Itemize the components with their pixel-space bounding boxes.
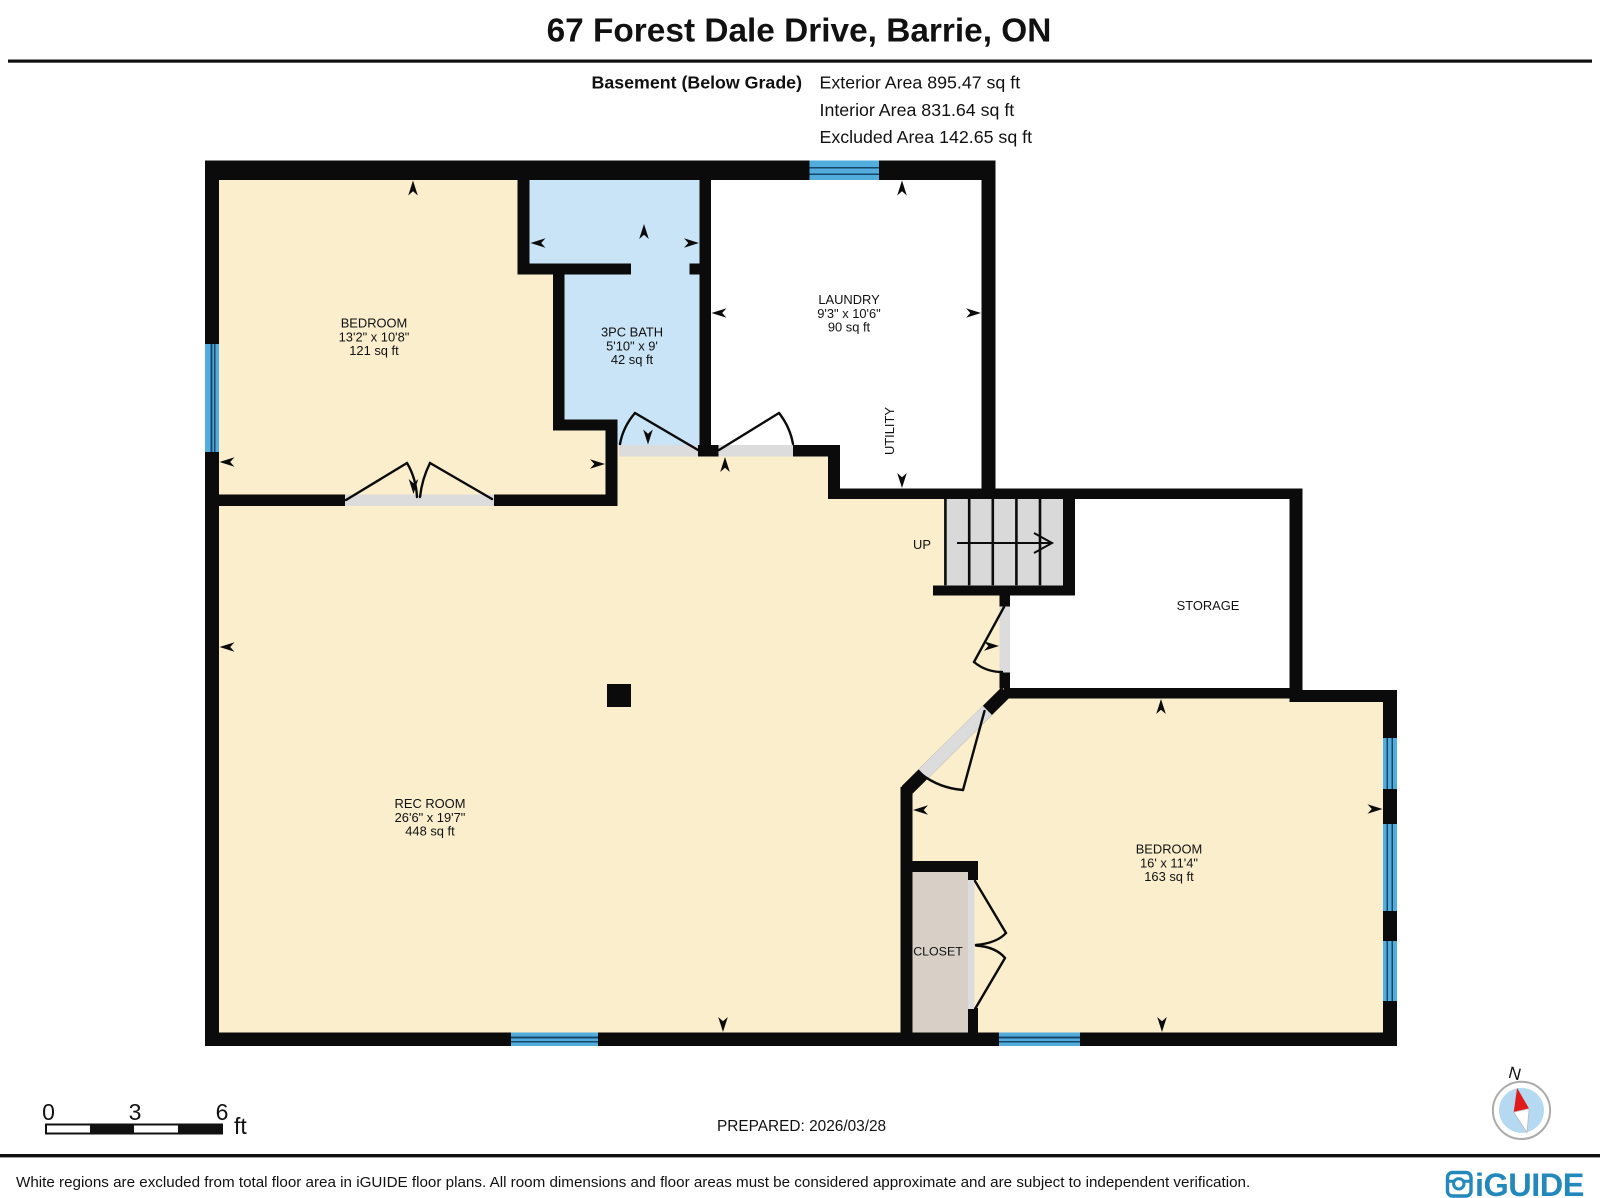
svg-text:163 sq ft: 163 sq ft [1144, 869, 1194, 884]
svg-text:Excluded Area 142.65 sq ft: Excluded Area 142.65 sq ft [820, 127, 1033, 147]
svg-text:UTILITY: UTILITY [882, 407, 897, 455]
svg-text:16' x 11'4": 16' x 11'4" [1140, 855, 1198, 870]
svg-text:3: 3 [129, 1099, 142, 1125]
svg-text:BEDROOM: BEDROOM [341, 316, 408, 331]
svg-text:121 sq ft: 121 sq ft [349, 343, 399, 358]
svg-text:LAUNDRY: LAUNDRY [818, 292, 880, 307]
svg-text:UP: UP [913, 537, 931, 552]
svg-text:9'3" x 10'6": 9'3" x 10'6" [817, 306, 881, 321]
svg-text:448 sq ft: 448 sq ft [405, 824, 455, 839]
svg-text:5'10" x 9': 5'10" x 9' [606, 338, 658, 353]
svg-text:26'6" x 19'7": 26'6" x 19'7" [395, 810, 466, 825]
svg-text:White regions are excluded fro: White regions are excluded from total fl… [16, 1174, 1250, 1191]
svg-text:13'2" x 10'8": 13'2" x 10'8" [339, 329, 410, 344]
svg-text:3PC BATH: 3PC BATH [601, 325, 663, 340]
svg-text:42 sq ft: 42 sq ft [611, 352, 654, 367]
svg-text:Exterior Area 895.47 sq ft: Exterior Area 895.47 sq ft [820, 73, 1021, 93]
svg-text:0: 0 [42, 1099, 55, 1125]
svg-text:BEDROOM: BEDROOM [1136, 842, 1203, 857]
svg-text:6: 6 [216, 1099, 229, 1125]
svg-text:Interior Area 831.64 sq ft: Interior Area 831.64 sq ft [820, 100, 1015, 120]
svg-text:PREPARED: 2026/03/28: PREPARED: 2026/03/28 [717, 1118, 886, 1135]
svg-text:CLOSET: CLOSET [913, 945, 963, 959]
svg-text:90 sq ft: 90 sq ft [828, 320, 871, 335]
svg-text:REC ROOM: REC ROOM [395, 796, 466, 811]
svg-text:iGUIDE: iGUIDE [1475, 1167, 1584, 1198]
svg-text:67 Forest Dale Drive, Barrie,: 67 Forest Dale Drive, Barrie, ON [547, 13, 1052, 50]
svg-text:ft: ft [234, 1113, 247, 1139]
svg-text:Basement (Below Grade): Basement (Below Grade) [592, 73, 803, 93]
svg-text:STORAGE: STORAGE [1177, 598, 1240, 613]
